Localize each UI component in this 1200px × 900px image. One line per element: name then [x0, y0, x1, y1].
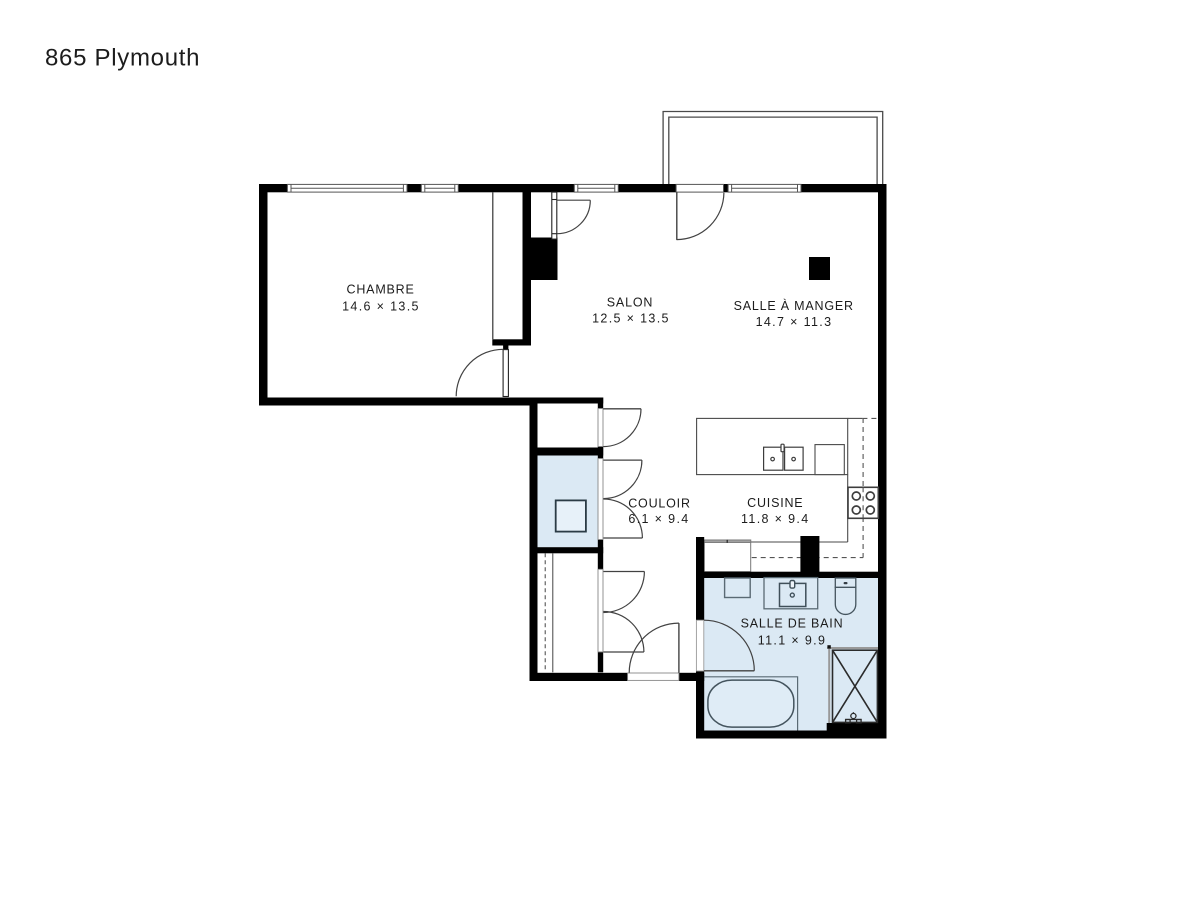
svg-text:11.8 × 9.4: 11.8 × 9.4 — [741, 512, 810, 526]
svg-text:CHAMBRE: CHAMBRE — [347, 283, 415, 297]
svg-text:CUISINE: CUISINE — [747, 496, 803, 510]
svg-text:COULOIR: COULOIR — [628, 496, 691, 510]
svg-text:11.1 × 9.9: 11.1 × 9.9 — [758, 633, 827, 647]
svg-text:14.6 × 13.5: 14.6 × 13.5 — [342, 299, 420, 313]
svg-text:SALLE DE BAIN: SALLE DE BAIN — [741, 617, 844, 631]
svg-text:SALON: SALON — [607, 295, 653, 309]
svg-text:SALLE À MANGER: SALLE À MANGER — [734, 298, 854, 313]
svg-text:14.7 × 11.3: 14.7 × 11.3 — [756, 315, 833, 329]
svg-text:865 Plymouth: 865 Plymouth — [45, 45, 200, 72]
svg-text:12.5 × 13.5: 12.5 × 13.5 — [592, 312, 670, 326]
svg-text:6.1 × 9.4: 6.1 × 9.4 — [628, 512, 689, 526]
